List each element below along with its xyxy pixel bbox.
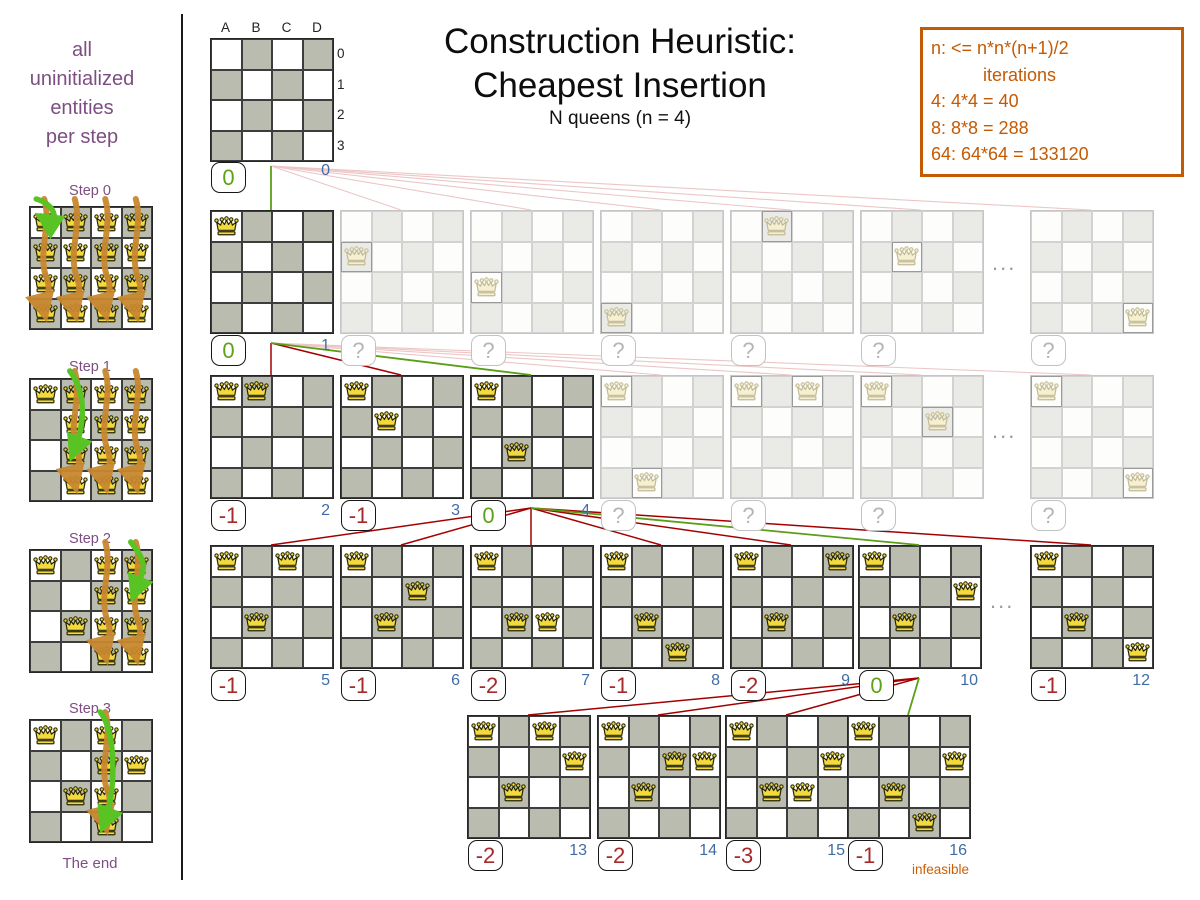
queen-icon [762, 211, 793, 242]
queen-icon [61, 611, 92, 642]
board-cell [892, 272, 923, 303]
board-cell [471, 211, 502, 242]
queen-icon [91, 410, 122, 441]
queen-icon [629, 777, 660, 808]
board-cell [601, 437, 632, 468]
board-cell [792, 437, 823, 468]
board-cell [471, 577, 502, 608]
queen-icon [341, 376, 372, 407]
board-cell [1123, 376, 1154, 407]
board-cell [30, 812, 61, 843]
step-board [29, 549, 153, 673]
board-cell [402, 303, 433, 334]
queen-icon [91, 268, 122, 299]
board-cell [341, 607, 372, 638]
board-cell [563, 376, 594, 407]
board-cell [1031, 638, 1062, 669]
tree-board [860, 210, 984, 334]
board-cell [471, 242, 502, 273]
board-cell [402, 546, 433, 577]
board-cell [502, 242, 533, 273]
board-cell [762, 272, 793, 303]
board-index-label: 16 [923, 842, 967, 860]
queen-icon [91, 440, 122, 471]
board-cell [1092, 407, 1123, 438]
board-cell [30, 581, 61, 612]
board-cell [632, 546, 663, 577]
board-cell [1031, 211, 1062, 242]
board-cell [890, 638, 921, 669]
board-cell [922, 437, 953, 468]
board-cell [922, 468, 953, 499]
board-cell [529, 747, 560, 778]
board-cell [272, 376, 303, 407]
step-board [29, 719, 153, 843]
queen-icon [272, 546, 303, 577]
board-cell [372, 546, 403, 577]
board-cell [1062, 242, 1093, 273]
board-index-label: 14 [673, 842, 717, 860]
queen-icon [1031, 376, 1062, 407]
board-cell [372, 468, 403, 499]
board-cell [940, 716, 971, 747]
board-index-label: 1 [286, 337, 330, 355]
tree-edge-ghost [271, 343, 1091, 375]
board-cell [372, 638, 403, 669]
queen-icon [892, 242, 923, 273]
queen-icon [61, 238, 92, 269]
queen-icon [91, 751, 122, 782]
board-cell [693, 546, 724, 577]
board-cell [601, 468, 632, 499]
caption-line: uninitialized [6, 65, 158, 94]
board-cell [211, 39, 242, 70]
board-cell [272, 303, 303, 334]
board-cell [818, 777, 849, 808]
board-cell [909, 777, 940, 808]
board-cell [762, 376, 793, 407]
board-cell [242, 272, 273, 303]
board-cell [953, 272, 984, 303]
score-badge: -3 [726, 840, 761, 871]
board-index-label: 5 [286, 672, 330, 690]
board-cell [242, 638, 273, 669]
board-cell [662, 577, 693, 608]
board-cell [502, 376, 533, 407]
board-cell [303, 131, 334, 162]
board-cell [953, 242, 984, 273]
queen-icon [861, 376, 892, 407]
board-cell [1031, 303, 1062, 334]
queen-icon [61, 299, 92, 330]
board-cell [341, 211, 372, 242]
queen-icon [859, 546, 890, 577]
board-cell [662, 272, 693, 303]
queen-icon [122, 751, 153, 782]
board-index-label: 15 [801, 842, 845, 860]
score-badge: -2 [471, 670, 506, 701]
board-cell [662, 303, 693, 334]
board-cell [341, 468, 372, 499]
board-cell [30, 440, 61, 471]
board-cell [563, 272, 594, 303]
board-cell [892, 407, 923, 438]
caption-line: all [6, 36, 158, 65]
board-cell [1062, 577, 1093, 608]
board-cell [823, 437, 854, 468]
board-cell [502, 407, 533, 438]
queen-icon [1031, 546, 1062, 577]
board-cell [632, 577, 663, 608]
board-cell [242, 546, 273, 577]
board-cell [402, 607, 433, 638]
board-cell [762, 546, 793, 577]
board-cell [272, 100, 303, 131]
board-cell [272, 242, 303, 273]
board-cell [1062, 468, 1093, 499]
tree-board [340, 545, 464, 669]
score-badge: ? [731, 335, 766, 366]
queen-icon [922, 407, 953, 438]
score-badge: ? [861, 500, 896, 531]
score-badge: 0 [211, 335, 246, 366]
board-cell [502, 546, 533, 577]
queen-icon [30, 720, 61, 751]
board-cell [468, 808, 499, 839]
slide-canvas: all uninitialized entities per step The … [0, 0, 1200, 900]
board-cell [787, 747, 818, 778]
tree-board [860, 375, 984, 499]
queen-icon [690, 747, 721, 778]
board-cell [731, 638, 762, 669]
queen-icon [122, 611, 153, 642]
board-index-label: 12 [1106, 672, 1150, 690]
board-cell [787, 808, 818, 839]
score-badge: -2 [731, 670, 766, 701]
board-cell [892, 468, 923, 499]
board-cell [879, 808, 910, 839]
board-cell [433, 468, 464, 499]
queen-icon [122, 207, 153, 238]
board-cell [922, 211, 953, 242]
board-cell [953, 303, 984, 334]
queen-icon [731, 546, 762, 577]
board-cell [662, 437, 693, 468]
board-cell [757, 808, 788, 839]
board-cell [563, 468, 594, 499]
board-cell [242, 39, 273, 70]
board-cell [690, 716, 721, 747]
board-cell [499, 716, 530, 747]
queen-icon [471, 376, 502, 407]
board-cell [792, 407, 823, 438]
board-cell [372, 242, 403, 273]
board-cell [560, 777, 591, 808]
board-cell [563, 577, 594, 608]
board-cell [861, 272, 892, 303]
queen-icon [211, 546, 242, 577]
info-line: 64: 64*64 = 133120 [931, 141, 1181, 168]
board-cell [823, 303, 854, 334]
board-cell [433, 607, 464, 638]
board-cell [502, 303, 533, 334]
column-header: D [302, 20, 333, 35]
board-cell [1031, 577, 1062, 608]
board-cell [532, 242, 563, 273]
board-cell [823, 272, 854, 303]
board-cell [563, 303, 594, 334]
board-cell [662, 468, 693, 499]
tree-board [1030, 210, 1154, 334]
board-cell [922, 272, 953, 303]
board-cell [402, 437, 433, 468]
board-cell [792, 468, 823, 499]
score-badge: 0 [471, 500, 506, 531]
board-cell [792, 272, 823, 303]
tree-board [600, 210, 724, 334]
board-cell [211, 100, 242, 131]
board-cell [861, 303, 892, 334]
info-line: 8: 8*8 = 288 [931, 115, 1181, 142]
board-index-label: 2 [286, 502, 330, 520]
tree-board [340, 210, 464, 334]
board-cell [242, 100, 273, 131]
board-cell [792, 211, 823, 242]
tree-edge-selected [908, 678, 919, 715]
board-index-label: 9 [806, 672, 850, 690]
row-header: 0 [337, 38, 353, 69]
board-cell [1062, 376, 1093, 407]
queen-icon [30, 379, 61, 410]
board-cell [823, 211, 854, 242]
queen-icon [122, 268, 153, 299]
board-cell [303, 70, 334, 101]
board-cell [499, 747, 530, 778]
queen-icon [1123, 638, 1154, 669]
board-cell [211, 242, 242, 273]
queen-icon [122, 440, 153, 471]
score-badge: ? [471, 335, 506, 366]
board-cell [629, 808, 660, 839]
board-cell [823, 376, 854, 407]
queen-icon [91, 642, 122, 673]
board-cell [1092, 242, 1123, 273]
queen-icon [91, 207, 122, 238]
board-cell [563, 638, 594, 669]
board-cell [1123, 437, 1154, 468]
board-cell [726, 808, 757, 839]
queen-icon [61, 410, 92, 441]
board-cell [372, 376, 403, 407]
board-index-label: 0 [286, 162, 330, 180]
board-cell [532, 407, 563, 438]
queen-icon [471, 272, 502, 303]
board-cell [762, 577, 793, 608]
board-cell [433, 272, 464, 303]
board-cell [272, 407, 303, 438]
board-cell [303, 546, 334, 577]
board-cell [211, 437, 242, 468]
board-cell [30, 781, 61, 812]
board-cell [1031, 272, 1062, 303]
board-cell [122, 781, 153, 812]
score-badge: -1 [211, 500, 246, 531]
board-cell [951, 607, 982, 638]
queen-icon [560, 747, 591, 778]
board-cell [792, 242, 823, 273]
tree-board [847, 715, 971, 839]
board-cell [731, 211, 762, 242]
board-cell [433, 211, 464, 242]
tree-board [1030, 545, 1154, 669]
board-cell [890, 577, 921, 608]
queen-icon [122, 642, 153, 673]
queen-icon [601, 303, 632, 334]
board-cell [762, 468, 793, 499]
score-badge: ? [861, 335, 896, 366]
queen-icon [940, 747, 971, 778]
board-cell [211, 272, 242, 303]
score-badge: -1 [1031, 670, 1066, 701]
queen-icon [601, 546, 632, 577]
board-cell [762, 638, 793, 669]
board-cell [922, 242, 953, 273]
board-cell [402, 407, 433, 438]
queen-icon [122, 299, 153, 330]
board-cell [402, 242, 433, 273]
board-cell [529, 777, 560, 808]
board-cell [272, 577, 303, 608]
board-cell [598, 808, 629, 839]
board-cell [433, 546, 464, 577]
board-cell [909, 747, 940, 778]
board-cell [1031, 242, 1062, 273]
board-cell [861, 407, 892, 438]
board-cell [953, 376, 984, 407]
board-cell [560, 808, 591, 839]
board-cell [1092, 211, 1123, 242]
queen-icon [890, 607, 921, 638]
queen-icon [499, 777, 530, 808]
board-cell [211, 407, 242, 438]
board-cell [848, 808, 879, 839]
board-cell [792, 303, 823, 334]
board-cell [601, 407, 632, 438]
board-cell [731, 468, 762, 499]
queen-icon [662, 638, 693, 669]
board-cell [920, 546, 951, 577]
board-cell [122, 812, 153, 843]
board-cell [951, 546, 982, 577]
queen-icon [762, 607, 793, 638]
queen-icon [91, 720, 122, 751]
board-cell [563, 607, 594, 638]
score-badge: -2 [598, 840, 633, 871]
board-cell [563, 407, 594, 438]
board-cell [502, 468, 533, 499]
caption-line: entities [6, 94, 158, 123]
board-cell [471, 303, 502, 334]
score-badge: 0 [211, 162, 246, 193]
board-cell [892, 376, 923, 407]
row-header: 1 [337, 69, 353, 100]
board-cell [303, 242, 334, 273]
board-cell [122, 720, 153, 751]
caption-line: per step [6, 123, 158, 152]
board-cell [1092, 437, 1123, 468]
queen-icon [61, 268, 92, 299]
queen-icon [242, 376, 273, 407]
board-cell [823, 242, 854, 273]
board-cell [30, 471, 61, 502]
title-line-2: Cheapest Insertion [360, 64, 880, 108]
board-cell [601, 638, 632, 669]
board-cell [471, 407, 502, 438]
board-cell [757, 716, 788, 747]
board-cell [341, 638, 372, 669]
board-cell [823, 468, 854, 499]
board-cell [693, 437, 724, 468]
queen-icon [61, 440, 92, 471]
board-cell [372, 303, 403, 334]
board-cell [402, 468, 433, 499]
queen-icon [91, 781, 122, 812]
board-cell [1123, 272, 1154, 303]
board-cell [823, 638, 854, 669]
queen-icon [91, 471, 122, 502]
queen-icon [471, 546, 502, 577]
score-badge: -1 [601, 670, 636, 701]
queen-icon [757, 777, 788, 808]
tree-board [467, 715, 591, 839]
queen-icon [61, 207, 92, 238]
board-cell [272, 437, 303, 468]
board-cell [726, 747, 757, 778]
board-cell [1123, 407, 1154, 438]
queen-icon [1123, 468, 1154, 499]
tree-board [470, 210, 594, 334]
queen-icon [91, 611, 122, 642]
queen-icon [30, 550, 61, 581]
board-cell [823, 577, 854, 608]
board-cell [726, 777, 757, 808]
tree-board [597, 715, 721, 839]
board-cell [690, 808, 721, 839]
board-cell [731, 407, 762, 438]
board-cell [909, 716, 940, 747]
board-cell [662, 607, 693, 638]
info-line: n: <= n*n*(n+1)/2 [931, 35, 1181, 62]
board-cell [629, 747, 660, 778]
board-cell [211, 577, 242, 608]
board-cell [372, 437, 403, 468]
board-cell [303, 577, 334, 608]
queen-icon [242, 607, 273, 638]
board-cell [211, 468, 242, 499]
tree-board [210, 375, 334, 499]
board-cell [792, 577, 823, 608]
board-cell [499, 808, 530, 839]
board-cell [341, 577, 372, 608]
page-title: Construction Heuristic: Cheapest Inserti… [360, 20, 880, 108]
board-cell [953, 407, 984, 438]
queen-icon [632, 468, 663, 499]
column-header: A [210, 20, 241, 35]
queen-icon [951, 577, 982, 608]
board-cell [433, 577, 464, 608]
score-badge: ? [601, 335, 636, 366]
board-cell [693, 376, 724, 407]
